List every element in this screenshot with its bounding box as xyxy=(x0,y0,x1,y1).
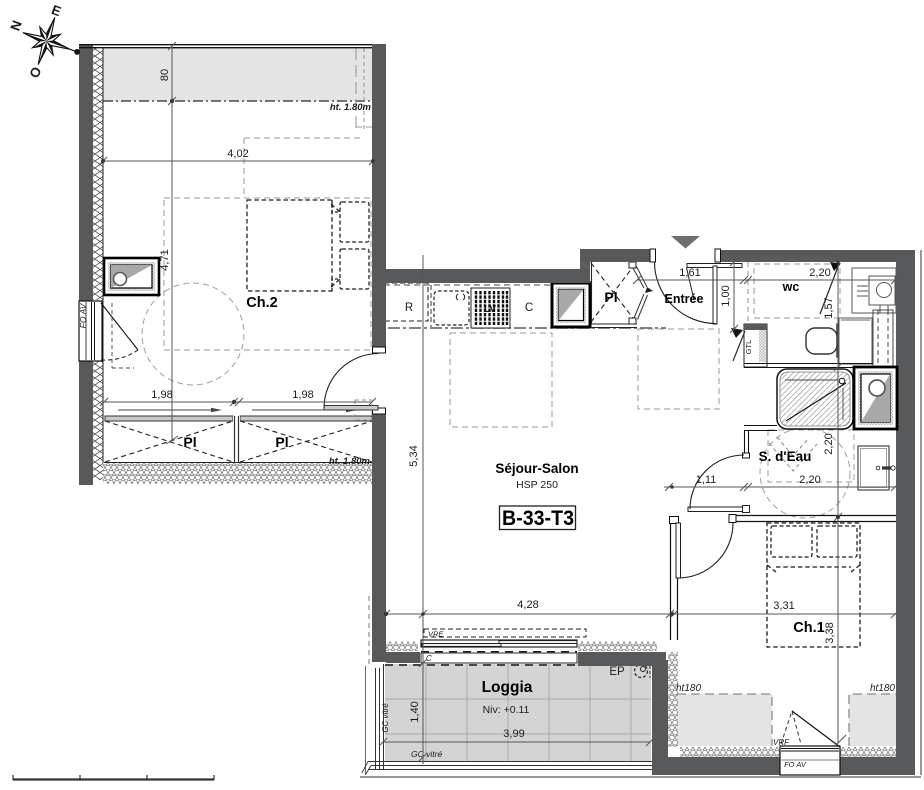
svg-text:GTL: GTL xyxy=(744,340,753,355)
svg-text:ht180: ht180 xyxy=(870,683,895,694)
svg-text:Niv: +0.11: Niv: +0.11 xyxy=(483,704,530,716)
svg-text:VRF: VRF xyxy=(773,738,790,747)
svg-text:R: R xyxy=(405,302,413,314)
svg-text:Loggia: Loggia xyxy=(482,679,533,696)
svg-text:5,34: 5,34 xyxy=(408,445,420,466)
svg-text:2,20: 2,20 xyxy=(799,474,820,486)
svg-text:4,71: 4,71 xyxy=(159,249,171,270)
svg-text:Ch.2: Ch.2 xyxy=(246,295,277,311)
svg-text:Ch.1: Ch.1 xyxy=(793,620,824,636)
svg-text:3,99: 3,99 xyxy=(503,728,524,740)
svg-text:1,57: 1,57 xyxy=(823,297,835,318)
svg-text:2,20: 2,20 xyxy=(809,267,830,279)
svg-text:3,31: 3,31 xyxy=(773,600,794,612)
svg-text:Pl: Pl xyxy=(604,289,617,305)
svg-text:1,61: 1,61 xyxy=(679,267,700,279)
svg-text:1,40: 1,40 xyxy=(409,701,421,722)
svg-text:C: C xyxy=(426,654,432,663)
svg-text:4,02: 4,02 xyxy=(227,148,248,160)
svg-text:3,38: 3,38 xyxy=(824,622,836,643)
svg-text:FO AV: FO AV xyxy=(78,302,88,328)
svg-text:2,20: 2,20 xyxy=(823,433,835,454)
svg-text:Entrée: Entrée xyxy=(665,292,704,306)
svg-text:wc: wc xyxy=(782,280,800,294)
svg-text:Pl: Pl xyxy=(183,434,196,450)
svg-text:C: C xyxy=(525,302,533,314)
svg-text:GC vitré: GC vitré xyxy=(381,703,390,733)
svg-text:1,11: 1,11 xyxy=(696,474,717,486)
svg-text:GC vitré: GC vitré xyxy=(411,749,442,759)
svg-text:80: 80 xyxy=(159,69,171,81)
svg-text:B-33-T3: B-33-T3 xyxy=(502,507,574,530)
svg-text:ht180: ht180 xyxy=(676,683,701,694)
svg-text:Pl: Pl xyxy=(275,434,288,450)
svg-text:HSP 250: HSP 250 xyxy=(516,479,558,491)
svg-text:VRE: VRE xyxy=(428,630,444,639)
svg-text:FO AV: FO AV xyxy=(784,760,807,769)
svg-text:S. d'Eau: S. d'Eau xyxy=(759,449,812,464)
svg-text:Séjour-Salon: Séjour-Salon xyxy=(495,461,578,476)
svg-text:EP: EP xyxy=(609,666,625,678)
svg-text:4,28: 4,28 xyxy=(517,599,538,611)
svg-text:ht. 1.80m: ht. 1.80m xyxy=(330,102,372,113)
svg-text:1,00: 1,00 xyxy=(720,285,732,306)
svg-text:1,98: 1,98 xyxy=(151,389,172,401)
svg-text:1,98: 1,98 xyxy=(292,389,313,401)
